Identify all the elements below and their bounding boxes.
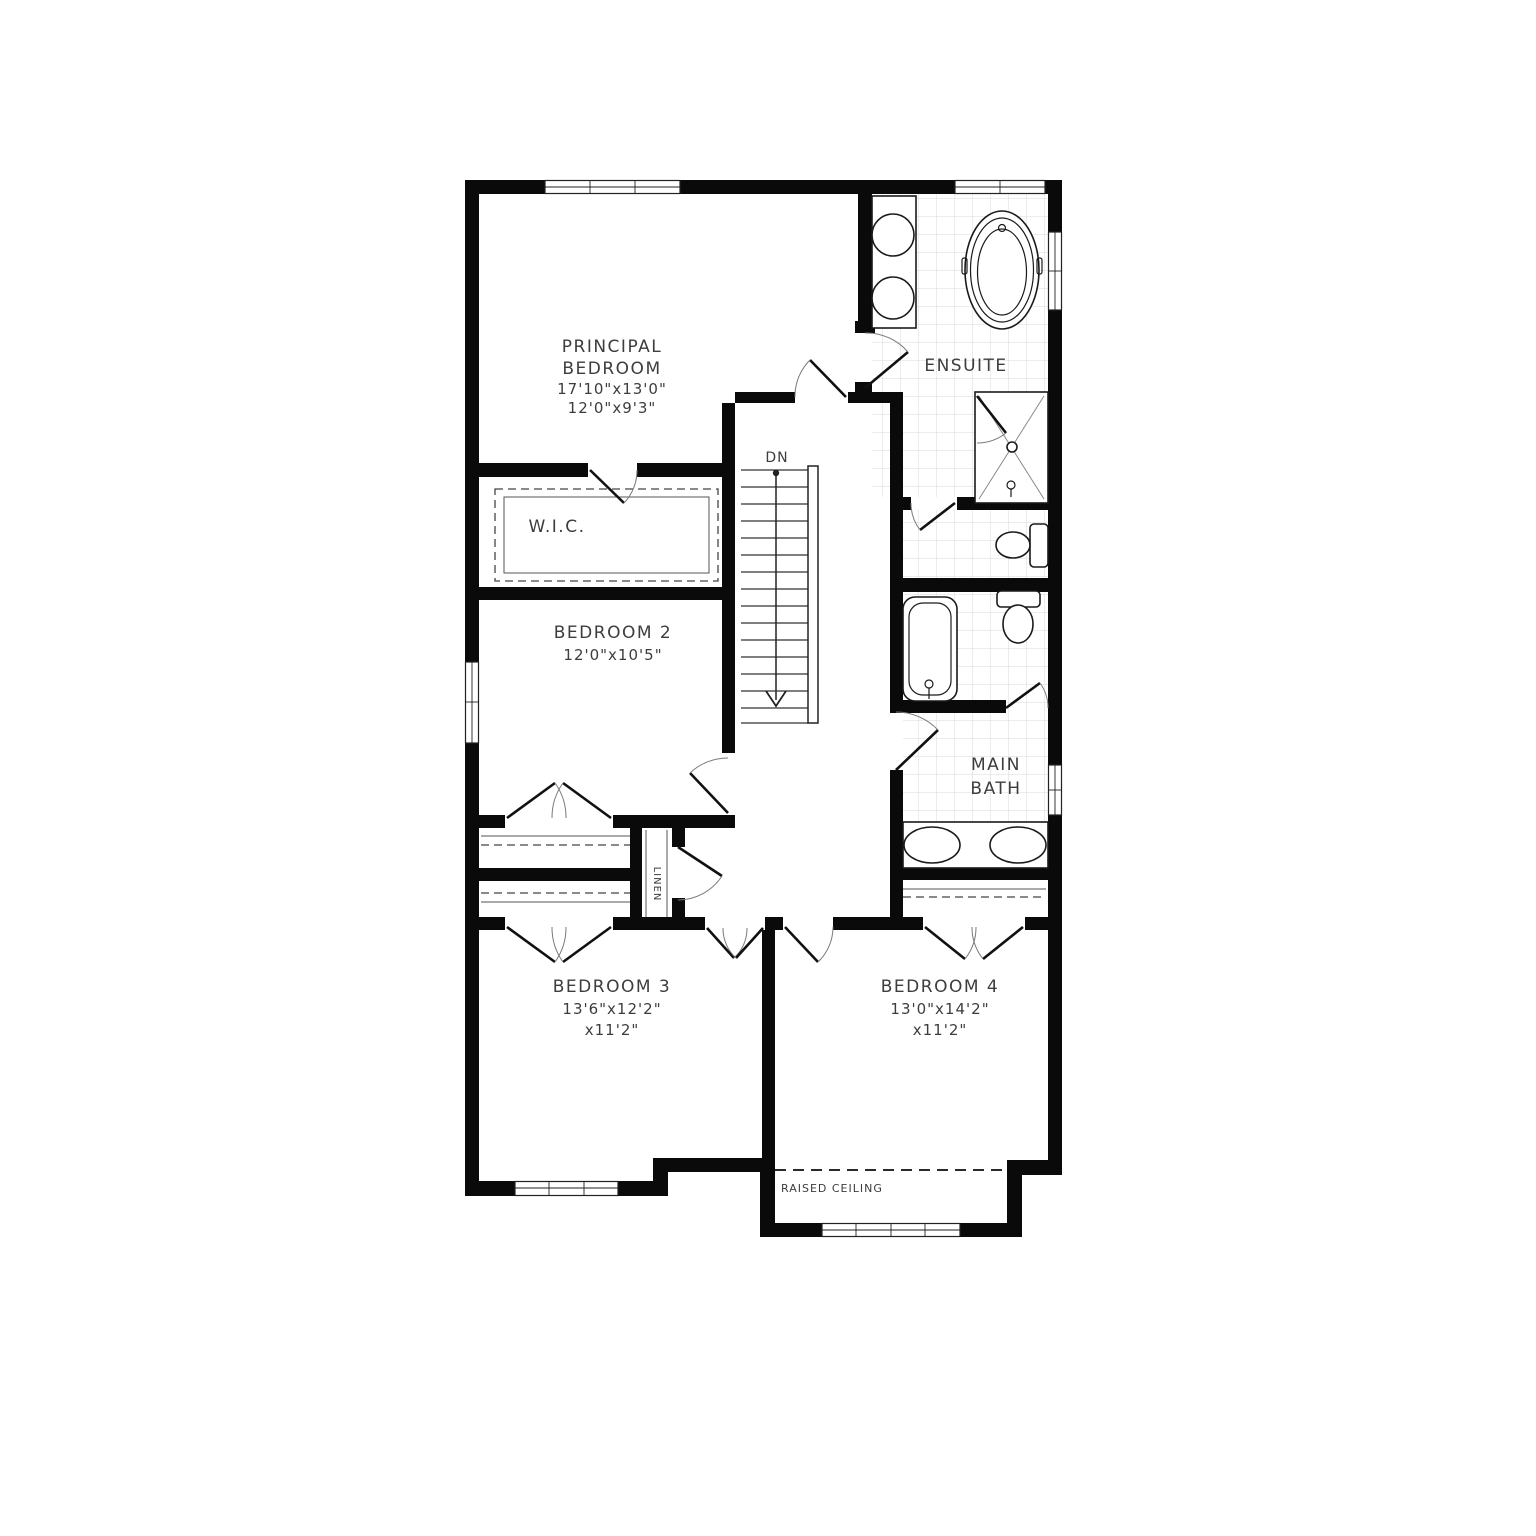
stair-dn-label: DN bbox=[765, 450, 788, 466]
main-bath-tub bbox=[903, 597, 957, 701]
bedroom4-dim1: 13'0"x14'2" bbox=[890, 1000, 989, 1018]
bedroom3-dim2: x11'2" bbox=[585, 1021, 640, 1039]
stair-handrail bbox=[808, 466, 818, 723]
door-linen bbox=[678, 847, 722, 900]
window-principal-bedroom bbox=[545, 181, 680, 194]
bedroom2-dim1: 12'0"x10'5" bbox=[563, 646, 662, 664]
door-bedroom4 bbox=[785, 927, 833, 962]
window-bedroom2 bbox=[466, 662, 479, 743]
bedroom2-label: BEDROOM 2 bbox=[554, 623, 672, 643]
stairs bbox=[741, 466, 818, 723]
closet-doors-bedroom4 bbox=[925, 927, 1023, 959]
window-main-bath bbox=[1049, 765, 1062, 815]
bedroom4-dim2: x11'2" bbox=[913, 1021, 968, 1039]
ensuite-label: ENSUITE bbox=[924, 356, 1007, 376]
door-principal-bedroom bbox=[795, 360, 846, 397]
principal-bedroom-dim2: 12'0"x9'3" bbox=[568, 399, 657, 417]
bedroom3-label: BEDROOM 3 bbox=[553, 977, 671, 997]
main-bath-label2: BATH bbox=[970, 779, 1021, 799]
ensuite-shower bbox=[975, 392, 1048, 503]
stair-down-arrow bbox=[766, 470, 786, 706]
raised-ceiling-label: RAISED CEILING bbox=[781, 1182, 883, 1195]
wic-label: W.I.C. bbox=[529, 517, 586, 537]
floor-plan-page: PRINCIPAL BEDROOM 17'10"x13'0" 12'0"x9'3… bbox=[0, 0, 1536, 1536]
window-bedroom3 bbox=[515, 1182, 618, 1196]
door-bedroom2 bbox=[690, 758, 728, 813]
door-wic bbox=[590, 470, 637, 503]
ensuite-vanity bbox=[872, 196, 916, 328]
principal-bedroom-label2: BEDROOM bbox=[562, 359, 661, 379]
floor-plan-drawing: PRINCIPAL BEDROOM 17'10"x13'0" 12'0"x9'3… bbox=[0, 0, 1536, 1536]
main-bath-vanity bbox=[903, 822, 1048, 868]
principal-bedroom-label: PRINCIPAL bbox=[562, 337, 662, 357]
bedroom4-label: BEDROOM 4 bbox=[881, 977, 999, 997]
linen-label: LINEN bbox=[651, 867, 662, 902]
principal-bedroom-dim1: 17'10"x13'0" bbox=[557, 380, 667, 398]
closet-doors-bedroom2 bbox=[507, 783, 611, 818]
window-ensuite-right bbox=[1049, 232, 1062, 310]
bedroom3-dim1: 13'6"x12'2" bbox=[562, 1000, 661, 1018]
main-bath-label: MAIN bbox=[971, 755, 1021, 775]
window-bedroom4-bay bbox=[822, 1224, 960, 1237]
door-bedroom3 bbox=[707, 928, 763, 958]
closet-doors-bedroom3 bbox=[507, 927, 611, 962]
window-ensuite-top bbox=[955, 181, 1045, 194]
